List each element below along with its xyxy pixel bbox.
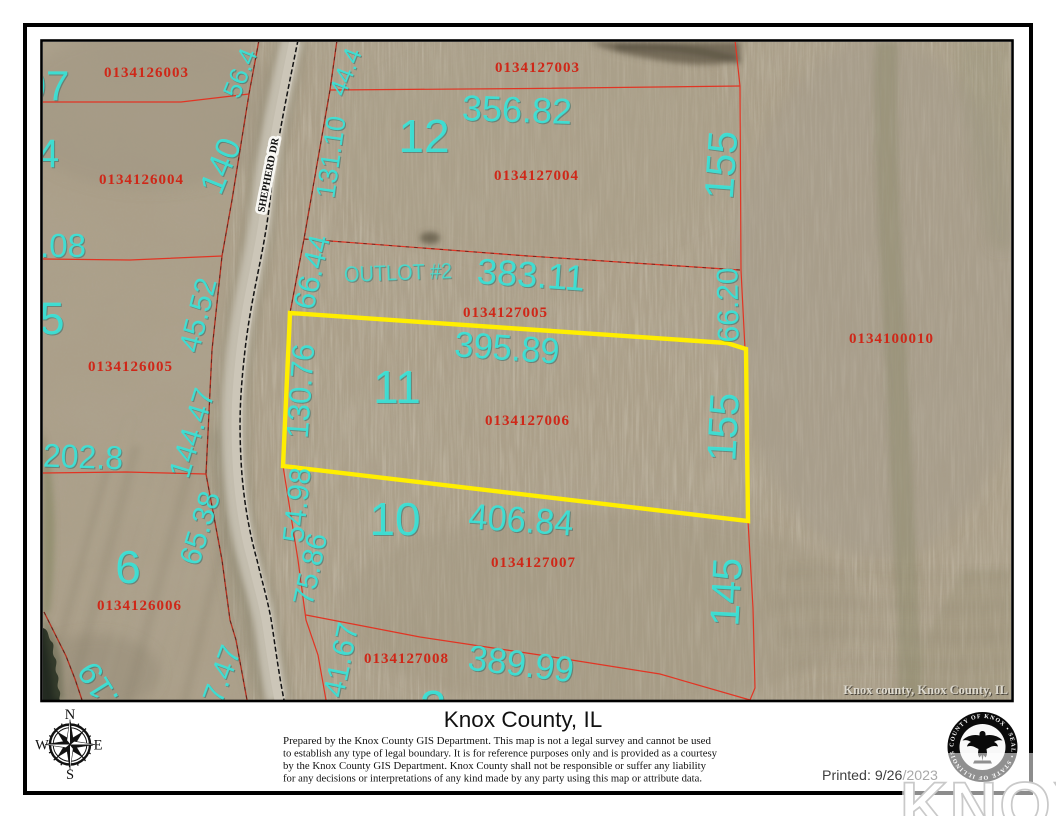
svg-text:KNOX: KNOX <box>900 768 1056 816</box>
svg-text:0134127004: 0134127004 <box>494 168 579 184</box>
svg-text:OUTLOT #2: OUTLOT #2 <box>344 258 453 287</box>
svg-text:0134126005: 0134126005 <box>88 359 172 375</box>
svg-text:155: 155 <box>698 392 748 463</box>
svg-text:by the Knox County GIS Departm: by the Knox County GIS Department. Knox … <box>283 761 707 772</box>
svg-text:66.20: 66.20 <box>711 267 745 343</box>
svg-text:130.76: 130.76 <box>280 342 322 439</box>
svg-text:W: W <box>35 738 49 754</box>
svg-text:6: 6 <box>115 541 141 593</box>
svg-text:10: 10 <box>369 493 420 545</box>
svg-text:12: 12 <box>398 110 449 162</box>
svg-text:356.82: 356.82 <box>461 87 572 132</box>
svg-text:5: 5 <box>39 293 64 344</box>
svg-text:to establish any type of legal: to establish any type of legal boundary.… <box>283 749 718 760</box>
svg-text:0134126004: 0134126004 <box>99 172 184 188</box>
svg-text:395.89: 395.89 <box>453 323 561 371</box>
svg-text:0134100010: 0134100010 <box>849 331 933 347</box>
svg-text:E: E <box>94 738 103 754</box>
svg-text:for any decisions or interpret: for any decisions or interpretations of … <box>283 774 702 785</box>
svg-text:Prepared by the Knox County GI: Prepared by the Knox County GIS Departme… <box>283 736 712 747</box>
svg-text:0134126006: 0134126006 <box>97 598 182 614</box>
svg-text:406.84: 406.84 <box>467 495 575 543</box>
svg-text:.08: .08 <box>40 227 86 264</box>
svg-text:S: S <box>66 767 74 783</box>
svg-text:383.11: 383.11 <box>476 250 587 298</box>
svg-text:0134127006: 0134127006 <box>485 413 570 429</box>
svg-text:0134126003: 0134126003 <box>104 65 188 81</box>
svg-text:145: 145 <box>701 557 751 628</box>
svg-text:Knox county, Knox County, IL: Knox county, Knox County, IL <box>843 683 1008 697</box>
svg-text:Knox County, IL: Knox County, IL <box>444 707 602 732</box>
svg-text:155: 155 <box>696 129 747 200</box>
svg-text:202.8: 202.8 <box>42 437 123 477</box>
svg-text:0134127003: 0134127003 <box>495 60 579 76</box>
svg-text:0134127007: 0134127007 <box>491 555 576 571</box>
svg-text:N: N <box>65 707 76 723</box>
svg-text:0134127008: 0134127008 <box>364 651 448 667</box>
svg-text:0134127005: 0134127005 <box>463 305 547 321</box>
svg-text:11: 11 <box>373 361 421 413</box>
